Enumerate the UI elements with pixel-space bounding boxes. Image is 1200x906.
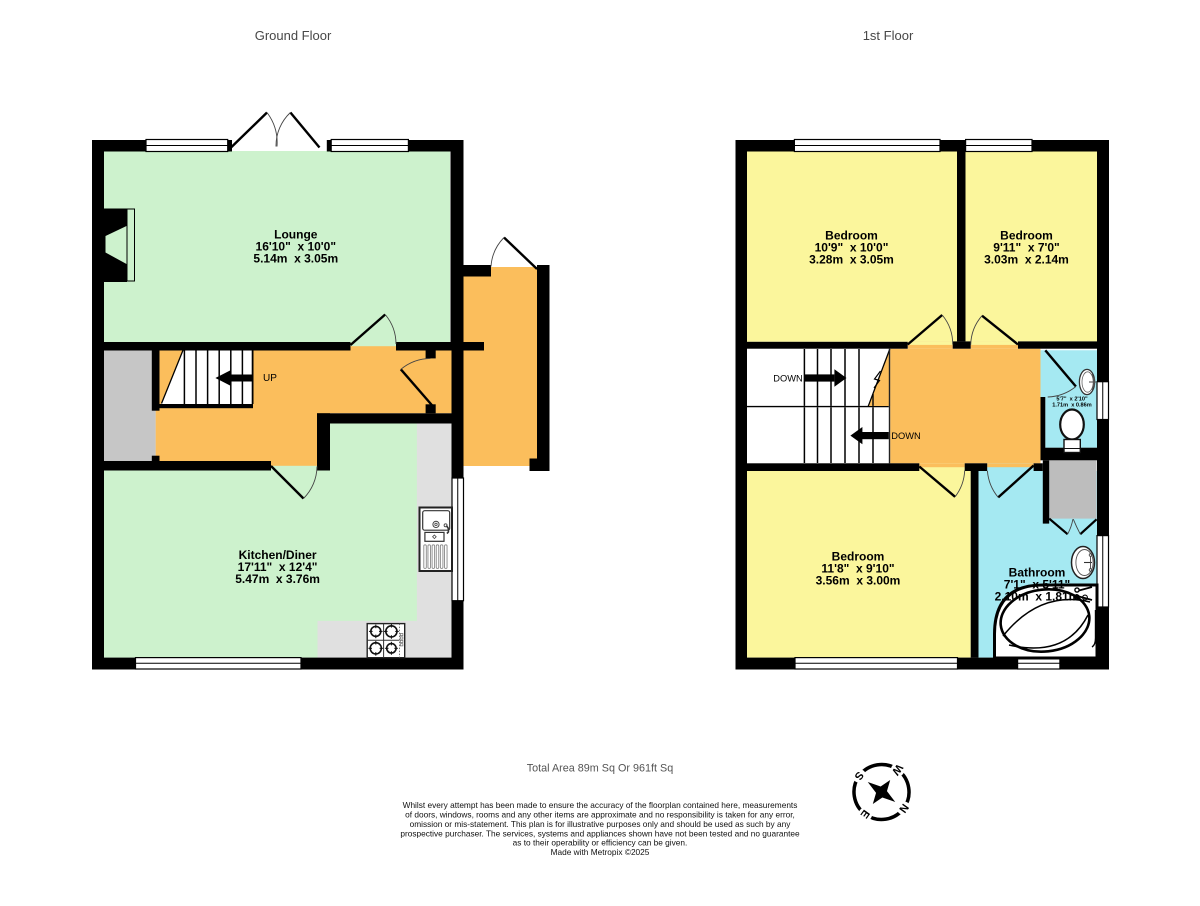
svg-text:UP: UP bbox=[263, 373, 277, 384]
svg-text:5.14m x 3.05m: 5.14m x 3.05m bbox=[253, 252, 338, 266]
svg-text:5.47m x 3.76m: 5.47m x 3.76m bbox=[235, 572, 320, 586]
svg-text:Ground Floor: Ground Floor bbox=[255, 28, 332, 43]
svg-text:Total Area 89m Sq Or 961ft Sq: Total Area 89m Sq Or 961ft Sq bbox=[527, 763, 673, 775]
svg-text:3.03m x 2.14m: 3.03m x 2.14m bbox=[984, 252, 1069, 266]
svg-text:3.28m x 3.05m: 3.28m x 3.05m bbox=[809, 252, 894, 266]
svg-text:1st Floor: 1st Floor bbox=[863, 28, 914, 43]
svg-text:DOWN: DOWN bbox=[773, 374, 802, 384]
svg-text:5'7" x 2'10": 5'7" x 2'10" bbox=[1056, 396, 1088, 402]
svg-text:DOWN: DOWN bbox=[891, 431, 920, 441]
svg-text:3.56m x 3.00m: 3.56m x 3.00m bbox=[816, 573, 901, 587]
svg-text:1.71m x 0.86m: 1.71m x 0.86m bbox=[1052, 403, 1092, 409]
svg-text:Made with Metropix ©2025: Made with Metropix ©2025 bbox=[551, 847, 650, 857]
svg-text:2.10m x 1.81m: 2.10m x 1.81m bbox=[995, 589, 1080, 603]
